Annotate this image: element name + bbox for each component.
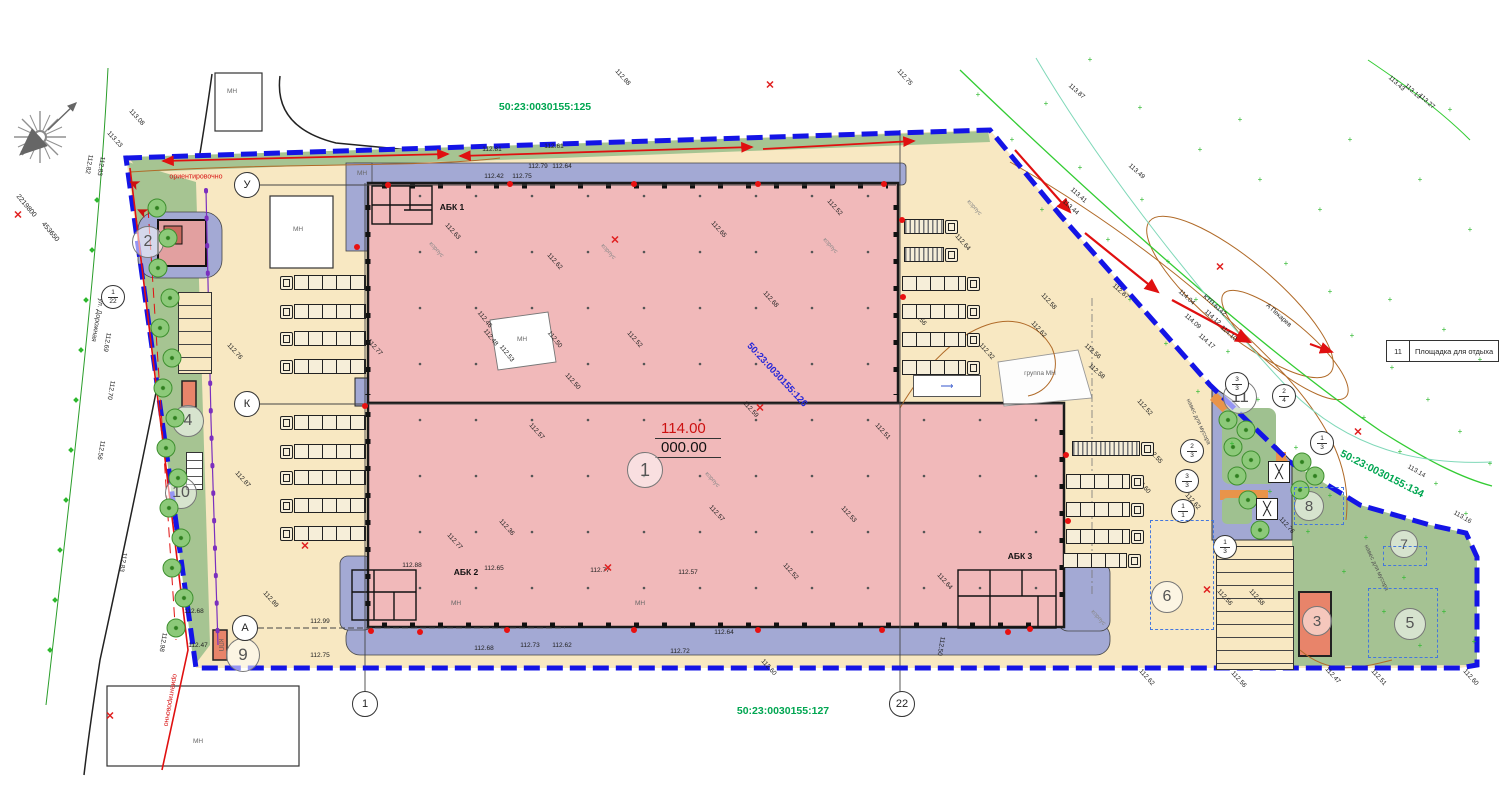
text-label: АБК 3 — [1008, 552, 1033, 561]
survey-cross-icon: ✕ — [610, 234, 619, 247]
axis-fraction-circle: 13 — [1310, 431, 1334, 455]
drain-point-icon — [507, 181, 513, 187]
axis-circle-У: У — [234, 172, 260, 198]
text-label: 112.60 — [759, 659, 777, 678]
drain-point-icon — [1063, 452, 1069, 458]
text-label: 112.75 — [895, 69, 913, 88]
text-label: ориентировочно — [169, 174, 222, 181]
fraction-bottom: 3 — [1320, 444, 1324, 452]
text-label: 112.82 — [83, 154, 93, 174]
text-label: 112.69 — [101, 332, 111, 352]
truck — [280, 444, 366, 459]
text-label: 114.09 — [1183, 313, 1202, 331]
axis-fraction-circle: 24 — [1272, 384, 1296, 408]
text-label: 112.47 — [188, 643, 207, 650]
text-label: корпус — [704, 471, 721, 489]
vegetation-mark-icon: + — [1078, 164, 1083, 172]
drain-point-icon — [879, 627, 885, 633]
truck-cab — [1131, 475, 1144, 489]
axis-fraction-circle: 122 — [101, 285, 125, 309]
text-label: 112.57 — [527, 423, 545, 442]
text-label: 113.43 — [1387, 75, 1406, 93]
truck-trailer — [294, 470, 366, 485]
text-label: 112.77 — [365, 339, 383, 358]
road-green-marker-icon — [89, 247, 95, 253]
cadastral-number-top: 50:23:0030155:125 — [499, 101, 591, 113]
drain-point-icon — [385, 182, 391, 188]
tree-icon — [169, 469, 188, 488]
survey-cross-icon: ✕ — [1353, 426, 1362, 439]
text-label: МН — [193, 739, 203, 746]
fraction-top: 3 — [1232, 376, 1242, 385]
tree-icon — [149, 259, 168, 278]
vegetation-mark-icon: + — [1294, 444, 1299, 452]
truck — [280, 331, 366, 346]
fraction-top: 1 — [1317, 435, 1327, 444]
drain-point-icon — [755, 627, 761, 633]
text-label: 112.83 — [117, 552, 127, 572]
truck — [1066, 474, 1144, 489]
road-green-marker-icon — [63, 497, 69, 503]
vegetation-mark-icon: + — [1318, 206, 1323, 214]
road-green-marker-icon — [73, 397, 79, 403]
fraction-top: 1 — [1220, 539, 1230, 548]
drain-point-icon — [504, 627, 510, 633]
parking-area-left — [178, 292, 212, 374]
cadastral-number-inner: 50:23:0030155:126 — [745, 341, 810, 410]
text-label: 112.98 — [157, 632, 167, 652]
truck-trailer — [294, 275, 366, 290]
truck — [902, 304, 980, 319]
truck — [280, 359, 366, 374]
survey-cross-icon: ✕ — [765, 79, 774, 92]
text-label: 113.41 — [1069, 187, 1088, 205]
text-label: 112.64 — [935, 573, 953, 592]
text-label: 112.62 — [1137, 669, 1155, 688]
vegetation-mark-icon: + — [1434, 480, 1439, 488]
text-label: 112.88 — [613, 69, 631, 88]
vegetation-mark-icon: + — [1448, 106, 1453, 114]
vegetation-mark-icon: + — [1198, 146, 1203, 154]
axis-circle-1: 1 — [352, 691, 378, 717]
truck-trailer — [1072, 441, 1140, 456]
drain-point-icon — [1065, 518, 1071, 524]
truck-trailer — [294, 415, 366, 430]
text-label: 112.83 — [95, 156, 105, 176]
vegetation-mark-icon: + — [976, 91, 981, 99]
truck-cab — [280, 332, 293, 346]
truck-cab — [280, 445, 293, 459]
vegetation-mark-icon: + — [1364, 534, 1369, 542]
text-label: ориентировочно — [162, 673, 178, 727]
text-label: 112.57 — [707, 505, 725, 524]
text-label: 112.46 — [475, 310, 492, 329]
vegetation-mark-icon: + — [1464, 510, 1469, 518]
vegetation-mark-icon: + — [1442, 326, 1447, 334]
tree-icon — [163, 349, 182, 368]
drain-point-icon — [881, 181, 887, 187]
vegetation-mark-icon: + — [1418, 176, 1423, 184]
text-label: 113.27 — [1417, 93, 1436, 111]
pavilion-icon: ╳ — [1268, 461, 1290, 483]
text-label: 112.64 — [714, 630, 733, 637]
drain-point-icon — [899, 217, 905, 223]
truck-trailer — [1066, 502, 1130, 517]
text-label: 112.77 — [445, 533, 463, 552]
text-label: 112.99 — [310, 619, 329, 626]
text-label: корпус — [966, 199, 983, 217]
vegetation-mark-icon: + — [1128, 296, 1133, 304]
text-label: 112.56 — [1229, 671, 1247, 690]
text-label: 112.47 — [1323, 667, 1341, 686]
road-green-marker-icon — [52, 597, 58, 603]
text-label: 112.52 — [825, 199, 843, 218]
text-label: группа МН — [1024, 371, 1056, 378]
text-label: 112.81 — [482, 147, 501, 154]
truck-cab — [280, 416, 293, 430]
fraction-top: 2 — [1187, 443, 1197, 452]
vegetation-mark-icon: + — [1426, 396, 1431, 404]
elevation-relative: 000.00 — [655, 439, 721, 458]
text-label: КПП — [217, 639, 223, 651]
truck — [1066, 529, 1144, 544]
future-area-dashed-rect — [1368, 588, 1438, 658]
survey-cross-icon: ✕ — [603, 562, 612, 575]
drain-point-icon — [631, 627, 637, 633]
truck-cab — [967, 277, 980, 291]
truck-cab — [1141, 442, 1154, 456]
ramp-arrow-box: ⟶ — [913, 375, 981, 397]
fraction-bottom: 22 — [109, 298, 116, 306]
text-label: 112.68 — [474, 646, 493, 653]
vegetation-mark-icon: + — [1238, 116, 1243, 124]
annotation-layer: 50:23:0030155:125 50:23:0030155:127 50:2… — [0, 0, 1508, 792]
tree-icon — [160, 499, 179, 518]
text-label: 113.14 — [1406, 464, 1426, 479]
text-label: 112.75 — [512, 174, 531, 181]
tree-icon — [1306, 467, 1325, 486]
truck-trailer — [294, 359, 366, 374]
text-label: 112.62 — [545, 253, 563, 272]
road-green-marker-icon — [68, 447, 74, 453]
truck-trailer — [902, 276, 966, 291]
text-label: 112.36 — [497, 519, 515, 538]
fraction-bottom: 3 — [1223, 548, 1227, 556]
text-label: МН — [293, 227, 303, 234]
tree-icon — [151, 319, 170, 338]
text-label: 114.04 — [1177, 289, 1196, 307]
drain-point-icon — [631, 181, 637, 187]
text-label: 113.44 — [1061, 199, 1080, 217]
text-label: 112.68 — [761, 291, 779, 310]
vegetation-mark-icon: + — [1010, 136, 1015, 144]
truck-trailer — [904, 247, 944, 262]
truck-cab — [280, 276, 293, 290]
vegetation-mark-icon: + — [1040, 206, 1045, 214]
area-number-3: 3 — [1302, 606, 1332, 636]
text-label: 112.53 — [839, 506, 857, 525]
text-label: 112.70 — [105, 380, 115, 400]
vegetation-mark-icon: + — [1458, 428, 1463, 436]
survey-cross-icon: ✕ — [13, 209, 22, 222]
text-label: 113.16 — [1452, 510, 1472, 525]
text-label: 112.52 — [781, 563, 799, 582]
truck-trailer — [294, 444, 366, 459]
vegetation-mark-icon: + — [1194, 296, 1199, 304]
legend-item-number: 11 — [1387, 341, 1410, 361]
text-label: 114.10 — [1219, 325, 1238, 343]
vegetation-mark-icon: + — [1256, 396, 1261, 404]
fraction-bottom: 3 — [1235, 385, 1239, 393]
truck — [902, 332, 980, 347]
vegetation-mark-icon: + — [1106, 236, 1111, 244]
drain-point-icon — [417, 629, 423, 635]
truck — [280, 415, 366, 430]
road-green-marker-icon — [47, 647, 53, 653]
fraction-bottom: 3 — [1185, 482, 1189, 490]
text-label: 112.60 — [1461, 669, 1479, 688]
tree-icon — [159, 229, 178, 248]
vegetation-mark-icon: + — [1230, 440, 1235, 448]
vegetation-mark-icon: + — [1268, 488, 1273, 496]
truck-cab — [945, 248, 958, 262]
entry-arrow-1: ➤ — [125, 174, 143, 193]
tree-icon — [1219, 411, 1238, 430]
site-elevation-mark: 114.00 000.00 — [655, 420, 721, 458]
future-area-dashed-rect — [1383, 546, 1427, 566]
vegetation-mark-icon: + — [1226, 348, 1231, 356]
text-label: 112.51 — [1369, 669, 1387, 688]
truck-cab — [967, 333, 980, 347]
truck-cab — [280, 499, 293, 513]
text-label: АБК 1 — [440, 203, 465, 212]
text-label: МН — [635, 601, 645, 608]
text-label: МН — [357, 171, 367, 178]
axis-fraction-circle: 23 — [1180, 439, 1204, 463]
drain-point-icon — [1027, 626, 1033, 632]
drain-point-icon — [755, 181, 761, 187]
truck-trailer — [902, 332, 966, 347]
vegetation-mark-icon: + — [1164, 340, 1169, 348]
parking-area-bottom-right — [1216, 546, 1294, 670]
text-label: МН — [227, 89, 237, 96]
text-label: 112.62 — [552, 643, 571, 650]
drain-point-icon — [354, 244, 360, 250]
truck-cab — [1131, 503, 1144, 517]
text-label: 112.65 — [484, 566, 503, 573]
truck — [1072, 441, 1154, 456]
text-label: 112.57 — [678, 570, 697, 577]
text-label: 112.75 — [310, 653, 329, 660]
text-label: 112.53 — [497, 344, 514, 363]
tree-icon — [1228, 467, 1247, 486]
vegetation-mark-icon: + — [1088, 56, 1093, 64]
fraction-top: 1 — [1178, 503, 1188, 512]
text-label: 112.52 — [625, 331, 643, 350]
truck-trailer — [1063, 553, 1127, 568]
tree-icon — [163, 559, 182, 578]
road-green-marker-icon — [78, 347, 84, 353]
fraction-top: 1 — [108, 289, 118, 298]
truck-trailer — [294, 304, 366, 319]
truck-cab — [945, 220, 958, 234]
text-label: 113.87 — [1067, 83, 1086, 101]
text-label: 453650 — [40, 221, 60, 243]
truck-trailer — [294, 498, 366, 513]
text-label: 112.68 — [184, 609, 203, 616]
text-label: 112.50 — [563, 373, 581, 392]
elevation-proposed: 114.00 — [655, 420, 721, 439]
vegetation-mark-icon: + — [1442, 608, 1447, 616]
truck-cab — [967, 361, 980, 375]
text-label: МН — [451, 601, 461, 608]
text-label: АБК 2 — [454, 568, 479, 577]
text-label: 112.88 — [402, 563, 421, 570]
truck — [280, 470, 366, 485]
vegetation-mark-icon: + — [1350, 332, 1355, 340]
tree-icon — [148, 199, 167, 218]
text-label: 113.23 — [105, 131, 123, 150]
truck-cab — [1131, 530, 1144, 544]
axis-fraction-circle: 33 — [1225, 372, 1249, 396]
truck — [1066, 502, 1144, 517]
truck-cab — [967, 305, 980, 319]
text-label: 112.76 — [225, 343, 243, 362]
truck-cab — [280, 360, 293, 374]
vegetation-mark-icon: + — [1196, 388, 1201, 396]
survey-cross-icon: ✕ — [300, 540, 309, 553]
vegetation-mark-icon: + — [1362, 414, 1367, 422]
truck-trailer — [1066, 474, 1130, 489]
vegetation-mark-icon: + — [1284, 260, 1289, 268]
future-area-dashed-rect — [1150, 520, 1214, 630]
text-label: 113.49 — [1127, 163, 1146, 181]
text-label: А Пекарев — [1264, 303, 1292, 329]
text-label: 112.73 — [520, 643, 539, 650]
truck — [280, 498, 366, 513]
text-label: 112.87 — [1111, 283, 1130, 301]
fraction-top: 3 — [1182, 473, 1192, 482]
truck-cab — [280, 527, 293, 541]
pavilion-icon: ╳ — [1256, 498, 1278, 520]
vegetation-mark-icon: + — [1488, 460, 1493, 468]
text-label: 112.51 — [873, 423, 891, 442]
text-label: корпус — [1090, 609, 1107, 627]
vegetation-mark-icon: + — [1348, 136, 1353, 144]
truck-trailer — [904, 219, 944, 234]
cadastral-number-bottom: 50:23:0030155:127 — [737, 705, 829, 717]
truck — [1063, 553, 1141, 568]
area-number-1: 1 — [627, 452, 663, 488]
text-label: 112.58 — [1087, 363, 1106, 381]
text-label: 112.58 — [1039, 293, 1057, 312]
fraction-bottom: 1 — [1181, 512, 1185, 520]
tree-icon — [1239, 491, 1258, 510]
text-label: 112.50 — [545, 330, 562, 349]
truck-cab — [1128, 554, 1141, 568]
text-label: 112.79 — [528, 164, 547, 171]
road-green-marker-icon — [94, 197, 100, 203]
tree-icon — [1237, 421, 1256, 440]
text-label: 112.89 — [261, 591, 279, 610]
text-label: 113.08 — [127, 109, 145, 128]
fraction-bottom: 4 — [1282, 397, 1286, 405]
text-label: 112.76 — [1277, 517, 1295, 536]
fraction-bottom: 3 — [1190, 452, 1194, 460]
text-label: 112.63 — [443, 223, 461, 242]
truck-trailer — [902, 360, 966, 375]
vegetation-mark-icon: + — [1258, 176, 1263, 184]
road-green-marker-icon — [57, 547, 63, 553]
tree-icon — [175, 589, 194, 608]
drain-point-icon — [362, 403, 368, 409]
truck — [904, 247, 958, 262]
drain-point-icon — [1005, 629, 1011, 635]
fraction-top: 2 — [1279, 388, 1289, 397]
survey-cross-icon: ✕ — [755, 402, 764, 415]
text-label: 114.17 — [1197, 333, 1216, 351]
text-label: МН — [517, 337, 527, 344]
axis-circle-22: 22 — [889, 691, 915, 717]
vegetation-mark-icon: + — [1140, 196, 1145, 204]
vegetation-mark-icon: + — [1044, 100, 1049, 108]
vegetation-mark-icon: + — [1388, 296, 1393, 304]
vegetation-mark-icon: + — [1342, 568, 1347, 576]
text-label: 112.61 — [544, 144, 563, 151]
truck — [280, 275, 366, 290]
vegetation-mark-icon: + — [1138, 104, 1143, 112]
text-label: 112.87 — [233, 471, 251, 490]
text-label: 112.50 — [935, 636, 945, 656]
axis-fraction-circle: 33 — [1175, 469, 1199, 493]
vegetation-mark-icon: + — [1468, 226, 1473, 234]
vegetation-mark-icon: + — [1166, 258, 1171, 266]
text-label: 112.42 — [484, 174, 503, 181]
text-label: 112.48 — [481, 328, 498, 347]
survey-cross-icon: ✕ — [1215, 261, 1224, 274]
tree-icon — [161, 289, 180, 308]
text-label: 112.72 — [670, 649, 689, 656]
truck-cab — [280, 305, 293, 319]
site-plan-drawing: 50:23:0030155:125 50:23:0030155:127 50:2… — [0, 0, 1508, 792]
axis-circle-К: К — [234, 391, 260, 417]
tree-icon — [167, 619, 186, 638]
tree-icon — [1251, 521, 1270, 540]
area-number-9: 9 — [226, 638, 260, 672]
truck — [280, 526, 366, 541]
text-label: 112.64 — [552, 164, 571, 171]
road-green-marker-icon — [83, 297, 89, 303]
text-label: ул. Дорожная — [90, 298, 105, 343]
text-label: 112.65 — [709, 221, 727, 240]
truck-trailer — [1066, 529, 1130, 544]
tree-icon — [157, 439, 176, 458]
text-label: 112.56 — [1083, 343, 1102, 361]
tree-icon — [1242, 451, 1261, 470]
truck-cab — [280, 471, 293, 485]
axis-circle-А: А — [232, 615, 258, 641]
survey-cross-icon: ✕ — [105, 710, 114, 723]
text-label: 112.52 — [1135, 399, 1153, 418]
axis-fraction-circle: 13 — [1213, 535, 1237, 559]
text-label: 112.56 — [95, 440, 105, 460]
vegetation-mark-icon: + — [1328, 288, 1333, 296]
text-label: корпус — [428, 241, 445, 259]
tree-icon — [172, 529, 191, 548]
tree-icon — [154, 379, 173, 398]
truck — [902, 360, 980, 375]
truck-trailer — [902, 304, 966, 319]
